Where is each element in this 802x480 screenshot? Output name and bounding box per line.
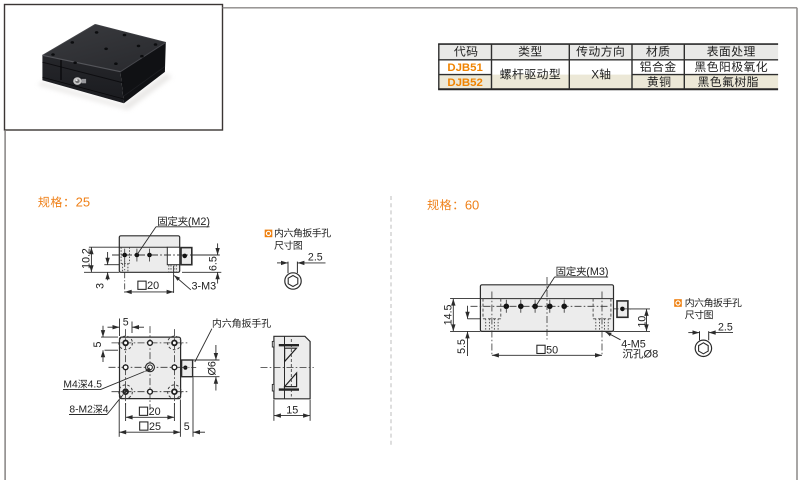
- svg-text:10.2: 10.2: [80, 248, 92, 269]
- svg-text:5: 5: [184, 421, 190, 433]
- svg-text:DJB52: DJB52: [447, 77, 482, 89]
- svg-text:10: 10: [637, 316, 649, 328]
- svg-text:2.5: 2.5: [718, 321, 733, 333]
- svg-text:DJB51: DJB51: [447, 62, 483, 74]
- svg-text:50: 50: [546, 344, 558, 356]
- svg-text:6.5: 6.5: [208, 256, 220, 271]
- svg-text:Ø8: Ø8: [644, 349, 659, 361]
- svg-text:Ø6: Ø6: [206, 361, 218, 375]
- svg-text:5: 5: [92, 341, 104, 347]
- svg-text:(M3): (M3): [586, 266, 608, 278]
- svg-text:X: X: [591, 67, 599, 81]
- svg-text:5: 5: [123, 316, 129, 328]
- svg-text:20: 20: [149, 406, 161, 418]
- svg-text:20: 20: [147, 280, 159, 292]
- svg-text:M4: M4: [63, 380, 78, 391]
- svg-text:25: 25: [76, 195, 90, 210]
- svg-text:3-M3: 3-M3: [192, 280, 217, 292]
- svg-text:60: 60: [465, 197, 479, 212]
- svg-text:14.5: 14.5: [443, 304, 455, 325]
- svg-text:25: 25: [149, 421, 161, 433]
- svg-text:15: 15: [286, 404, 298, 416]
- svg-text:4-M5: 4-M5: [621, 338, 646, 350]
- svg-text:5.5: 5.5: [456, 339, 468, 354]
- svg-text:2.5: 2.5: [308, 251, 323, 263]
- svg-text:4.5: 4.5: [88, 380, 103, 391]
- svg-text:(M2): (M2): [188, 216, 210, 228]
- svg-text:3: 3: [95, 283, 107, 289]
